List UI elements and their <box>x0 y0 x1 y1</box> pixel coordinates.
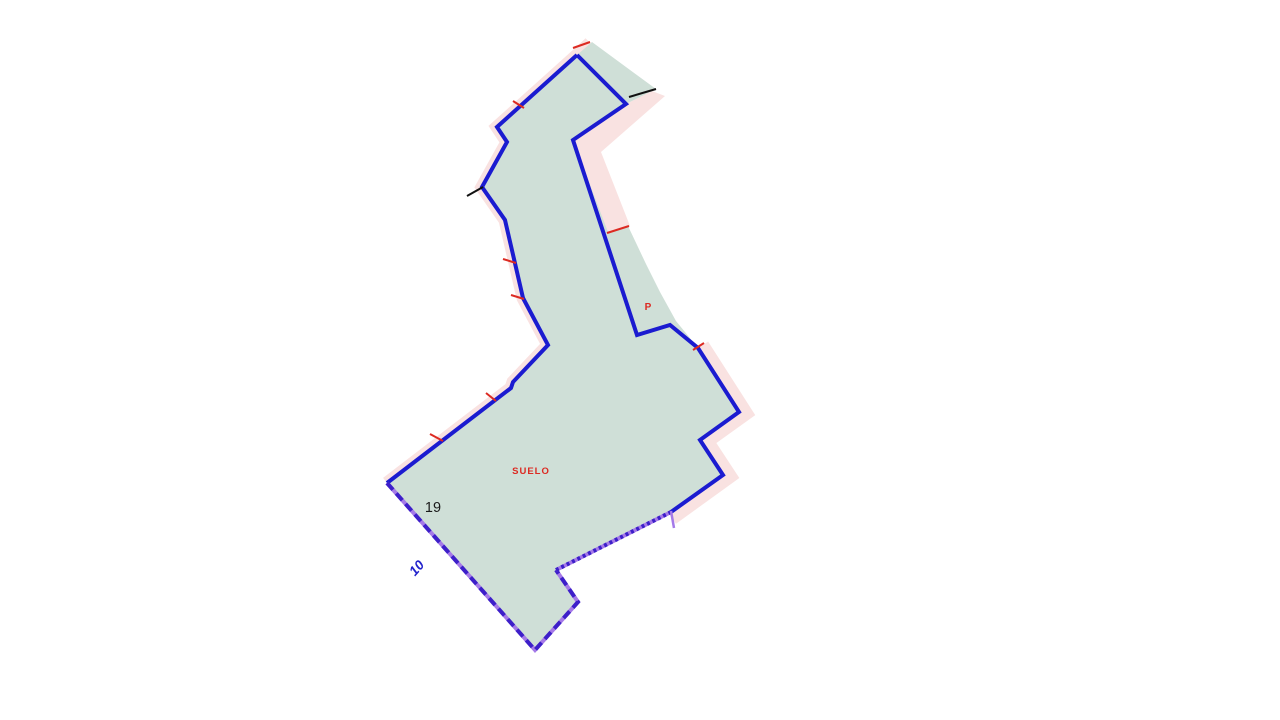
cadastral-map-canvas: SUELO P 19 10 <box>0 0 1280 720</box>
adjacent-number-label: 10 <box>406 557 428 579</box>
parcel-map-svg: SUELO P 19 10 <box>0 0 1280 720</box>
parcel-number-label: 19 <box>425 500 441 516</box>
parcel-polygon[interactable] <box>387 42 739 650</box>
sub-parcel-label: P <box>645 302 652 313</box>
land-use-label: SUELO <box>512 466 550 477</box>
